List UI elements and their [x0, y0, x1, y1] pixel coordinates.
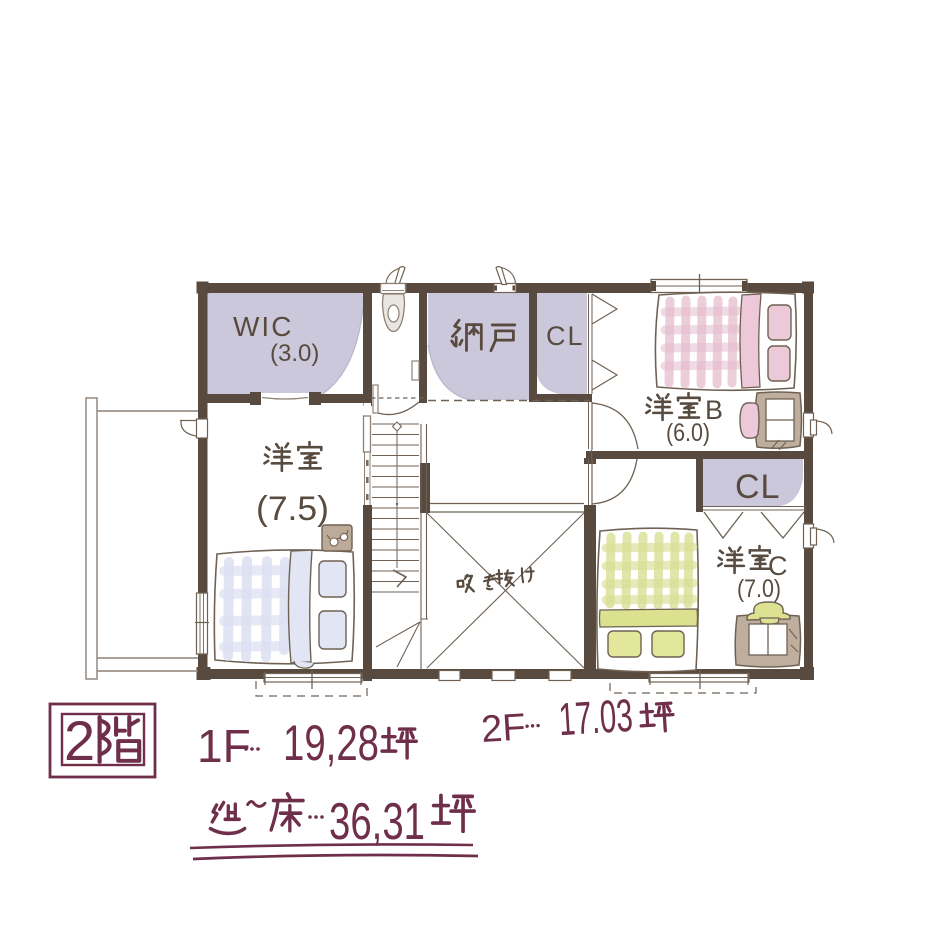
- svg-text:WIC: WIC: [233, 311, 293, 342]
- svg-text:1F: 1F: [197, 720, 251, 772]
- svg-text:2: 2: [64, 709, 95, 772]
- svg-text:36,31: 36,31: [329, 793, 425, 851]
- svg-text:19,28: 19,28: [283, 715, 379, 771]
- svg-text:17.03: 17.03: [557, 689, 634, 745]
- svg-text:(7.0): (7.0): [737, 575, 781, 603]
- svg-text:(6.0): (6.0): [666, 419, 710, 447]
- svg-text:(7.5): (7.5): [256, 490, 329, 528]
- svg-text:CL: CL: [546, 321, 585, 351]
- svg-text:CL: CL: [735, 468, 780, 506]
- svg-text:(3.0): (3.0): [270, 340, 319, 367]
- svg-text:2F: 2F: [480, 706, 527, 751]
